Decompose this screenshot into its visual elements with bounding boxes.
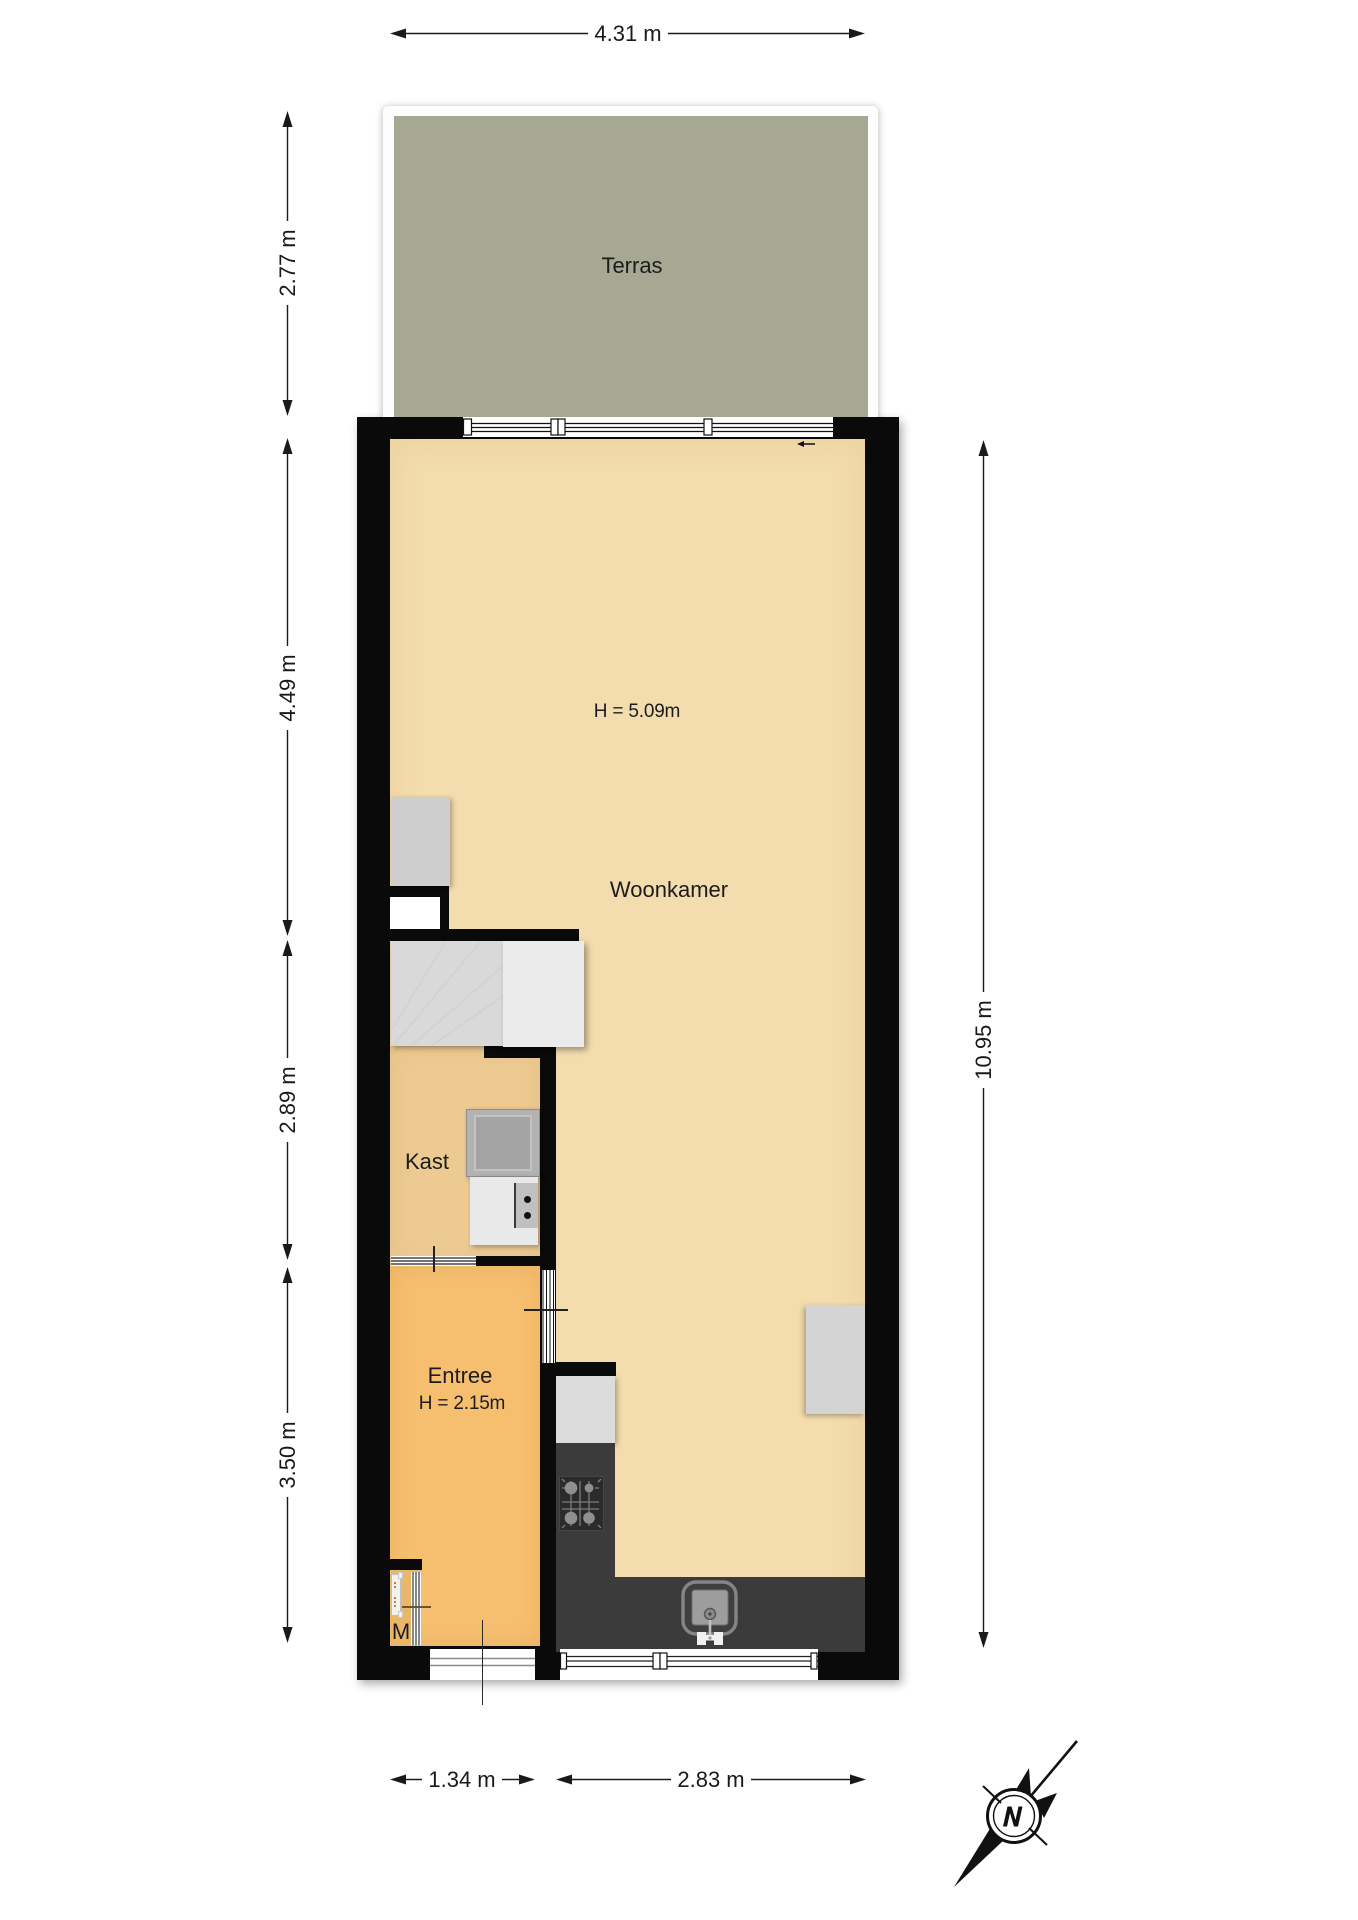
svg-text:2.83 m: 2.83 m bbox=[677, 1767, 744, 1792]
svg-text:10.95 m: 10.95 m bbox=[971, 1000, 996, 1080]
svg-text:2.89 m: 2.89 m bbox=[275, 1066, 300, 1133]
svg-text:2.77 m: 2.77 m bbox=[275, 229, 300, 296]
svg-text:3.50 m: 3.50 m bbox=[275, 1421, 300, 1488]
svg-text:1.34 m: 1.34 m bbox=[428, 1767, 495, 1792]
svg-text:4.31 m: 4.31 m bbox=[594, 21, 661, 46]
svg-text:4.49 m: 4.49 m bbox=[275, 654, 300, 721]
